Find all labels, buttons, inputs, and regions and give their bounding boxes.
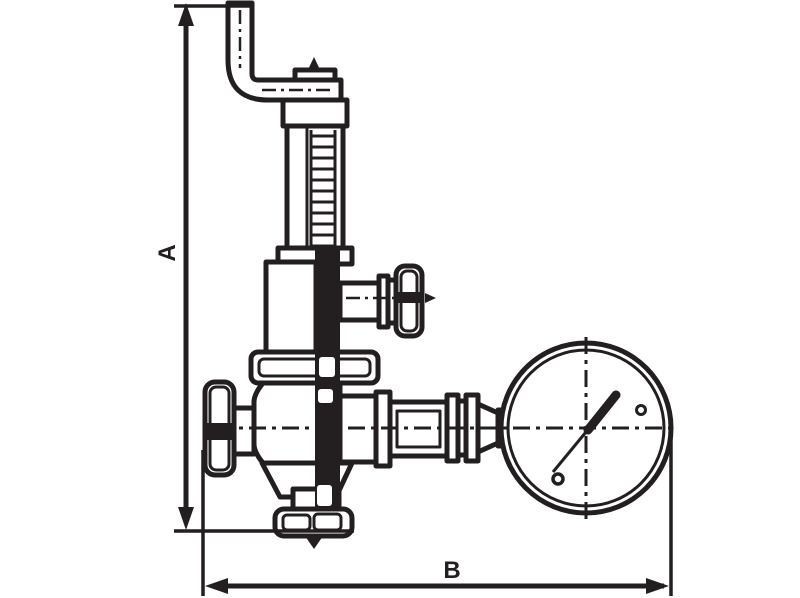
dimension-label-a: A <box>154 244 181 261</box>
bonnet-collar <box>283 100 347 126</box>
column-slot-2 <box>318 389 333 403</box>
arrowhead-left <box>205 578 228 594</box>
spring-chamber <box>266 262 316 352</box>
flange-outline <box>251 352 378 383</box>
vent-elbow-pipe-icon <box>228 3 341 100</box>
dial-mark-dot <box>637 406 646 415</box>
drawing-canvas: A B <box>0 0 800 598</box>
arrowhead-down <box>178 507 194 530</box>
spindle-column <box>315 248 340 510</box>
arrowhead-right <box>646 578 669 594</box>
knob-centerline-arrow <box>425 293 436 303</box>
column-slot-1 <box>319 357 335 377</box>
drain-tip <box>305 536 323 549</box>
valve-dimension-drawing: A B <box>0 0 800 598</box>
side-knob-icon <box>340 266 436 336</box>
needle-tail-ring <box>553 474 563 484</box>
diaphragm-flange-icon <box>251 352 378 383</box>
adjusting-bonnet-icon <box>278 100 352 264</box>
needle-hub <box>584 426 591 433</box>
spindle-column-icon <box>315 248 340 510</box>
column-slot-3 <box>317 485 332 506</box>
elbow-pipe-outline <box>228 3 341 100</box>
dimension-label-b: B <box>443 557 460 584</box>
handwheel-hub-band <box>205 423 234 440</box>
tee-arm <box>340 283 381 320</box>
